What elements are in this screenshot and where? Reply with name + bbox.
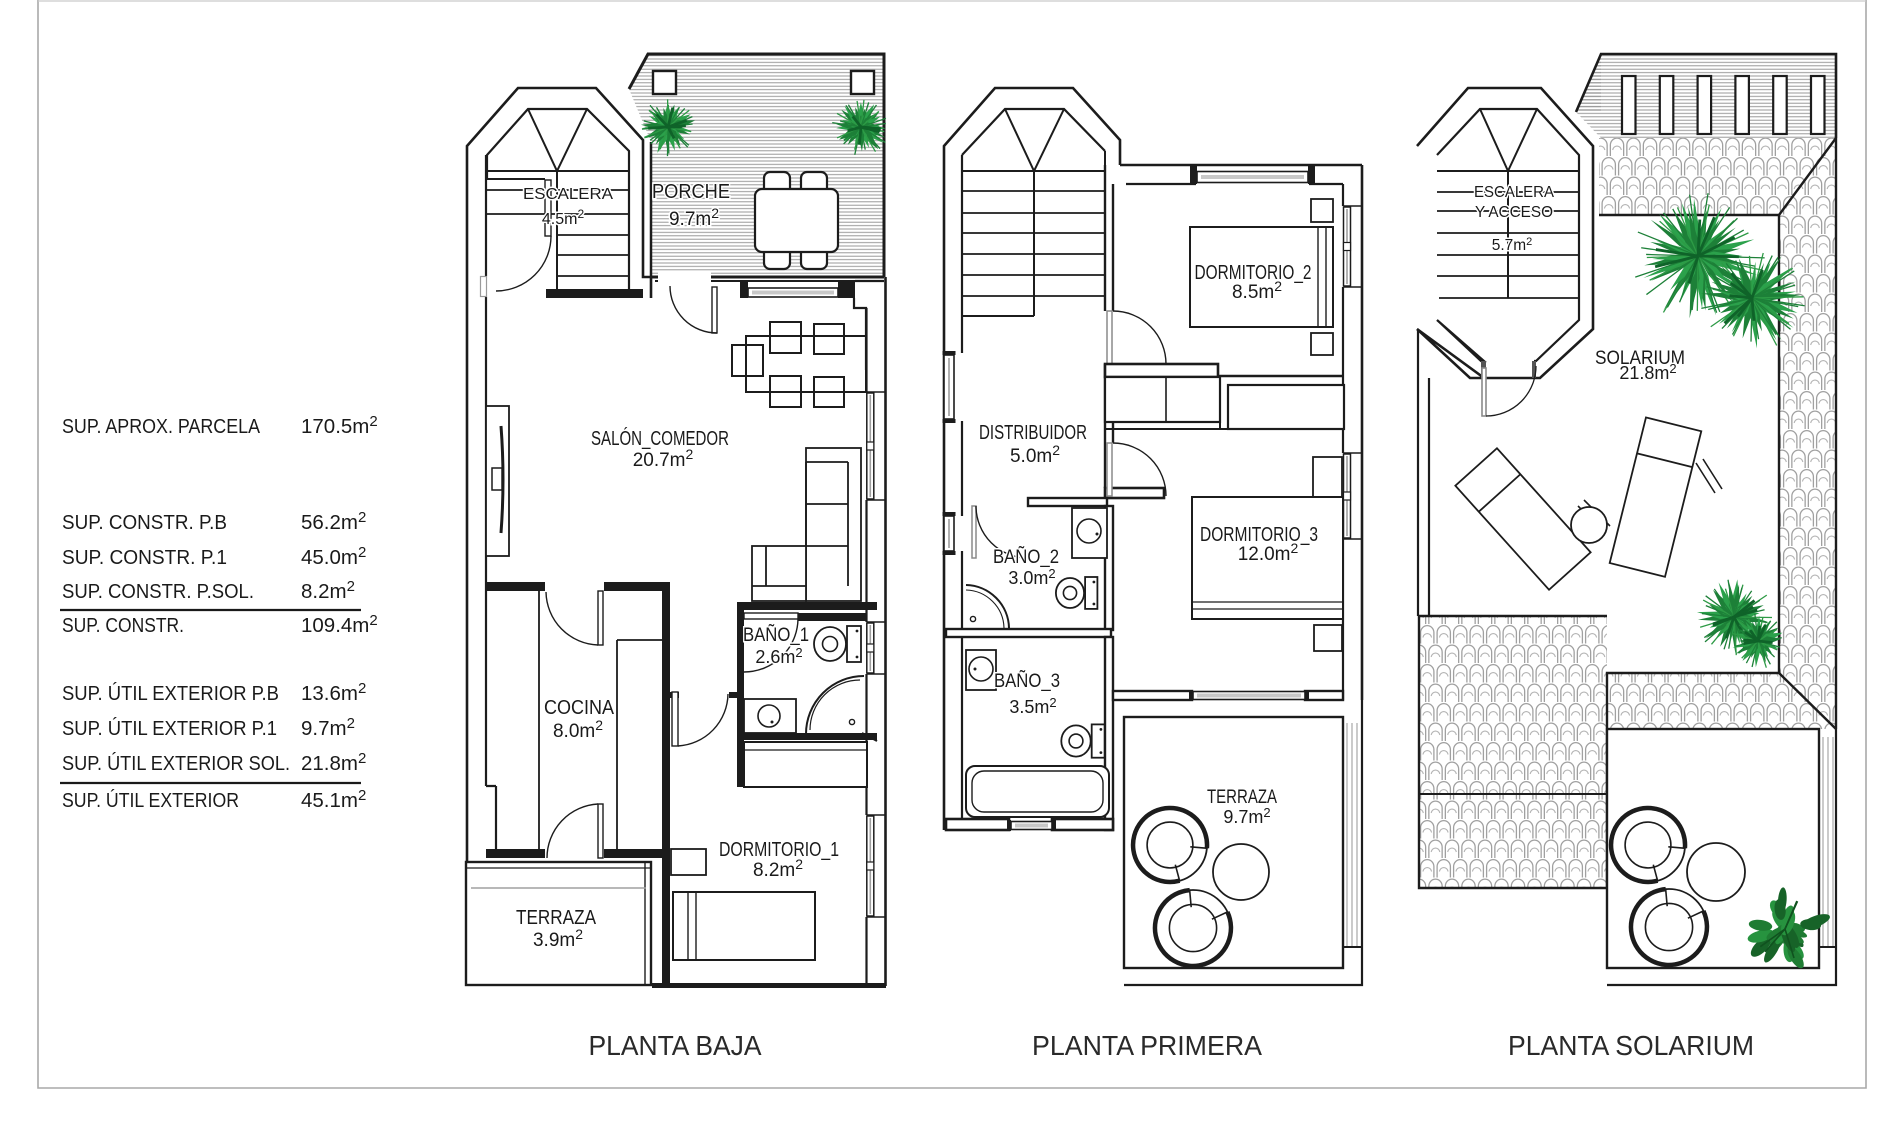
svg-text:DORMITORIO_2: DORMITORIO_2: [1195, 262, 1312, 284]
svg-text:170.5m2: 170.5m2: [301, 413, 378, 438]
svg-text:BAÑO_2: BAÑO_2: [993, 546, 1059, 568]
svg-text:SUP. CONSTR. P.1: SUP. CONSTR. P.1: [62, 546, 227, 569]
svg-text:PLANTA BAJA: PLANTA BAJA: [589, 1030, 762, 1061]
svg-text:SUP. CONSTR. P.B: SUP. CONSTR. P.B: [62, 511, 227, 534]
svg-text:SUP. ÚTIL EXTERIOR: SUP. ÚTIL EXTERIOR: [62, 789, 239, 812]
svg-text:SUP. ÚTIL EXTERIOR P.1: SUP. ÚTIL EXTERIOR P.1: [62, 717, 277, 740]
svg-text:21.8m2: 21.8m2: [301, 750, 366, 775]
svg-text:Y ACCESO: Y ACCESO: [1475, 204, 1553, 221]
svg-text:20.7m2: 20.7m2: [633, 446, 694, 471]
svg-text:DORMITORIO_3: DORMITORIO_3: [1200, 524, 1318, 546]
svg-text:DORMITORIO_1: DORMITORIO_1: [719, 839, 839, 861]
svg-text:COCINA: COCINA: [544, 697, 615, 719]
svg-text:DISTRIBUIDOR: DISTRIBUIDOR: [979, 422, 1087, 444]
svg-text:ESCALERA: ESCALERA: [523, 186, 613, 203]
svg-text:12.0m2: 12.0m2: [1238, 540, 1299, 565]
svg-text:45.1m2: 45.1m2: [301, 787, 366, 812]
svg-text:BAÑO_3: BAÑO_3: [994, 670, 1060, 692]
svg-text:109.4m2: 109.4m2: [301, 612, 378, 637]
svg-text:PLANTA PRIMERA: PLANTA PRIMERA: [1032, 1030, 1262, 1061]
svg-text:SUP. APROX. PARCELA: SUP. APROX. PARCELA: [62, 415, 260, 438]
svg-text:TERRAZA: TERRAZA: [516, 907, 597, 929]
svg-text:56.2m2: 56.2m2: [301, 509, 366, 534]
svg-text:BAÑO_1: BAÑO_1: [743, 624, 809, 646]
svg-text:21.8m2: 21.8m2: [1619, 361, 1676, 383]
svg-text:SALÓN_COMEDOR: SALÓN_COMEDOR: [591, 427, 729, 450]
svg-text:45.0m2: 45.0m2: [301, 544, 366, 569]
svg-text:PORCHE: PORCHE: [652, 181, 730, 203]
svg-text:ESCALERA: ESCALERA: [1474, 184, 1555, 201]
svg-text:PLANTA SOLARIUM: PLANTA SOLARIUM: [1508, 1030, 1754, 1061]
svg-text:SUP. ÚTIL EXTERIOR P.B: SUP. ÚTIL EXTERIOR P.B: [62, 682, 279, 705]
svg-text:13.6m2: 13.6m2: [301, 680, 366, 705]
svg-text:SUP. CONSTR.: SUP. CONSTR.: [62, 614, 184, 637]
svg-text:SUP. CONSTR. P.SOL.: SUP. CONSTR. P.SOL.: [62, 580, 254, 603]
svg-text:SUP. ÚTIL EXTERIOR SOL.: SUP. ÚTIL EXTERIOR SOL.: [62, 752, 290, 775]
